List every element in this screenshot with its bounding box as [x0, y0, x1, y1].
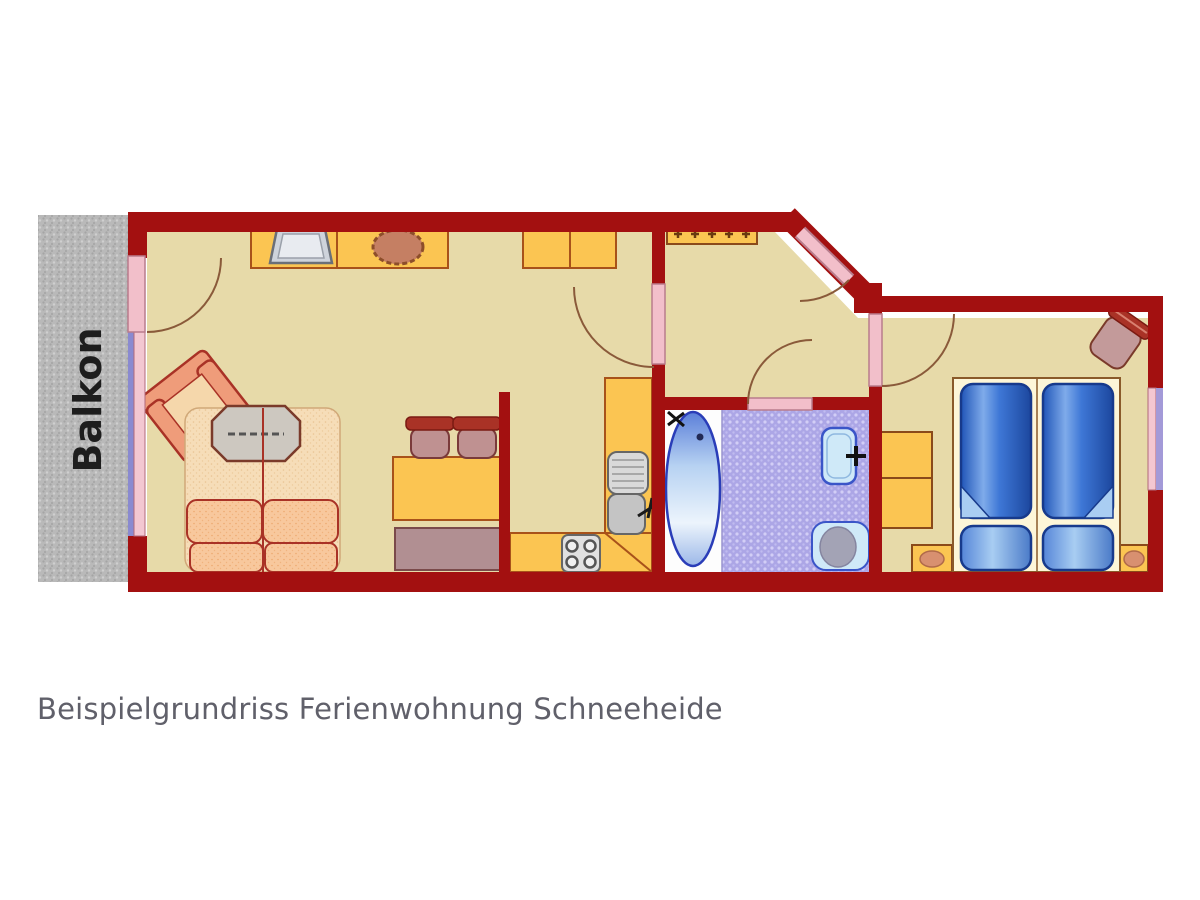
dining-table-icon — [393, 457, 500, 520]
bathroom-door-leaf — [748, 398, 812, 410]
floor-plan-image: Balkon — [0, 0, 1200, 900]
tv-screen — [278, 234, 324, 258]
dining-chair-icon — [406, 417, 454, 458]
dining-chair-icon — [453, 417, 501, 458]
balcony-door-leaf — [128, 256, 145, 332]
bathtub-drain — [697, 434, 704, 441]
balcony: Balkon — [38, 215, 130, 582]
caption: Beispielgrundriss Ferienwohnung Schneehe… — [37, 692, 723, 726]
sofa-seat-cushion — [190, 543, 263, 572]
bench-icon — [395, 528, 500, 570]
nightstand-decor — [1124, 551, 1144, 567]
pillow-icon — [1043, 526, 1113, 570]
plant-icon — [373, 230, 423, 264]
window-icon — [1148, 388, 1156, 490]
window-icon — [1156, 388, 1163, 490]
window-icon — [128, 332, 134, 536]
nightstand-decor — [920, 551, 944, 567]
bathtub-icon — [666, 412, 720, 566]
bedroom-door-leaf — [869, 314, 882, 386]
window-icon — [134, 332, 145, 536]
bathroom — [665, 410, 869, 572]
wardrobe-icon — [880, 432, 932, 528]
balcony-label: Balkon — [66, 327, 110, 472]
living-room-door-leaf — [652, 284, 665, 364]
sofa-seat-cushion — [265, 543, 337, 572]
pillow-icon — [961, 526, 1031, 570]
toilet-seat — [820, 527, 856, 567]
sofa-back-cushion — [187, 500, 262, 543]
floor-plan-svg: Balkon — [0, 0, 1200, 900]
sofa-back-cushion — [263, 500, 338, 543]
